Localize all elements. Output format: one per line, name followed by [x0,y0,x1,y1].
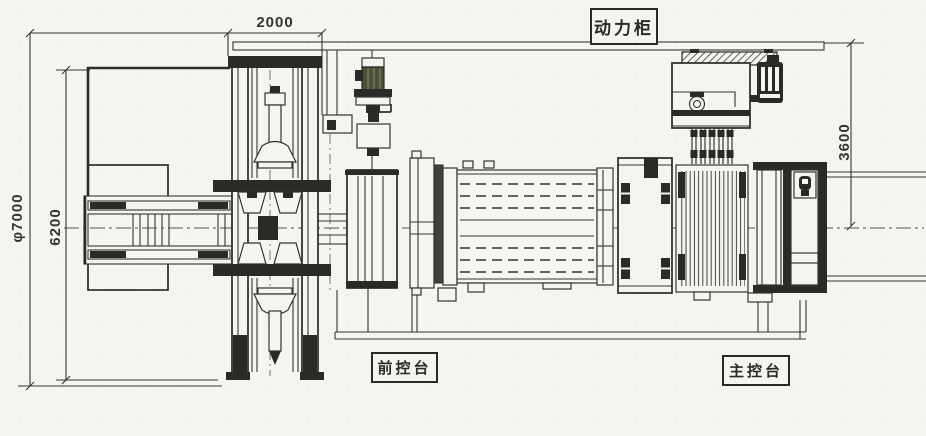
base-channel [335,288,806,339]
main-console-label-text: 主控台 [729,360,783,381]
end-frame [748,162,926,302]
pump-motor-unit [323,50,392,182]
main-drum [410,151,613,301]
engineering-drawing-canvas: 2000 φ7000 6200 3600 动力柜 前控台 主控台 [0,0,926,436]
power-cabinet-unit [672,49,783,128]
left-press-machine [88,56,331,380]
main-console-label: 主控台 [722,355,790,386]
front-console-label: 前控台 [371,352,438,383]
power-cabinet-label-text: 动力柜 [594,14,654,39]
dim-left-outer-diameter: φ7000 [9,187,25,249]
front-console-label-text: 前控台 [377,357,431,378]
finned-motor [676,128,748,300]
coupling-housing [618,158,672,293]
dim-top-width: 2000 [246,14,304,31]
power-cabinet-label: 动力柜 [590,8,658,45]
dim-left-inner-height: 6200 [47,203,63,251]
dim-right-height: 3600 [836,118,852,166]
bearing-pedestal [345,170,399,288]
